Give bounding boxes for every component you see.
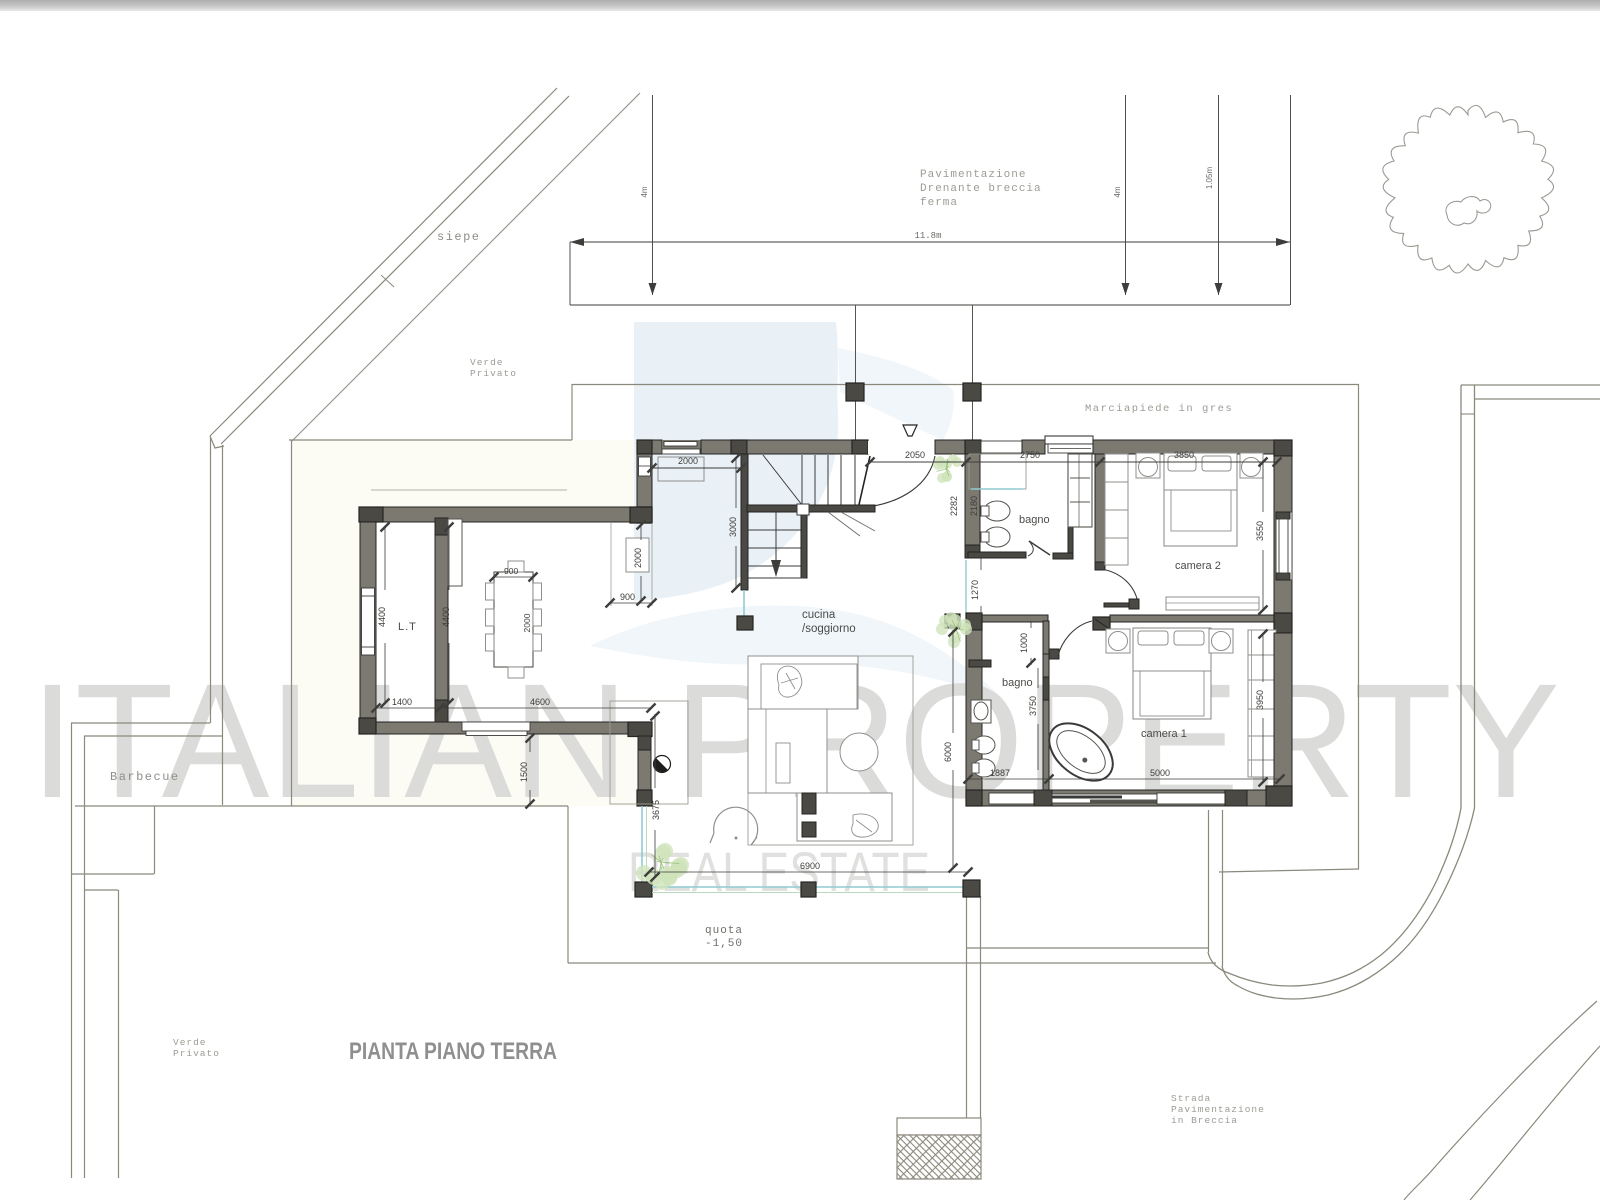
svg-text:camera 1: camera 1 [1141, 728, 1187, 740]
svg-text:900: 900 [620, 592, 635, 602]
svg-text:3000: 3000 [728, 517, 738, 537]
svg-text:6000: 6000 [943, 742, 953, 762]
svg-text:3550: 3550 [1255, 521, 1265, 541]
svg-text:2282: 2282 [949, 496, 959, 516]
svg-text:4400: 4400 [377, 607, 387, 627]
svg-text:4m: 4m [1113, 186, 1122, 197]
svg-text:1270: 1270 [970, 580, 980, 600]
svg-text:1.05m: 1.05m [1205, 167, 1214, 190]
svg-text:4600: 4600 [530, 697, 550, 707]
svg-text:2750: 2750 [1020, 450, 1040, 460]
svg-text:1400: 1400 [392, 697, 412, 707]
svg-text:1500: 1500 [519, 762, 529, 782]
svg-text:PIANTA PIANO TERRA: PIANTA PIANO TERRA [349, 1038, 557, 1065]
svg-text:6900: 6900 [800, 861, 820, 871]
svg-text:2000: 2000 [678, 456, 698, 466]
svg-text:quota-1,50: quota-1,50 [705, 925, 743, 950]
svg-text:Marciapiede in gres: Marciapiede in gres [1085, 403, 1233, 415]
svg-text:2050: 2050 [905, 450, 925, 460]
svg-text:3675: 3675 [651, 800, 661, 820]
svg-text:5000: 5000 [1150, 768, 1170, 778]
svg-text:Barbecue: Barbecue [110, 770, 180, 784]
svg-text:bagno: bagno [1019, 514, 1050, 526]
svg-text:bagno: bagno [1002, 677, 1033, 689]
svg-text:3950: 3950 [1255, 690, 1265, 710]
svg-text:4400: 4400 [441, 607, 451, 627]
svg-text:3850: 3850 [1174, 450, 1194, 460]
svg-text:4m: 4m [640, 186, 649, 197]
svg-text:L.T: L.T [398, 621, 417, 633]
svg-text:3750: 3750 [1028, 696, 1038, 716]
svg-text:1000: 1000 [1019, 633, 1029, 653]
svg-text:2000: 2000 [522, 613, 532, 632]
svg-text:900: 900 [504, 566, 518, 576]
svg-text:1887: 1887 [990, 768, 1010, 778]
svg-text:2180: 2180 [969, 496, 979, 516]
svg-text:11.8m: 11.8m [914, 231, 941, 241]
svg-text:camera 2: camera 2 [1175, 560, 1221, 572]
svg-text:siepe: siepe [437, 230, 481, 244]
svg-text:2000: 2000 [633, 548, 643, 568]
